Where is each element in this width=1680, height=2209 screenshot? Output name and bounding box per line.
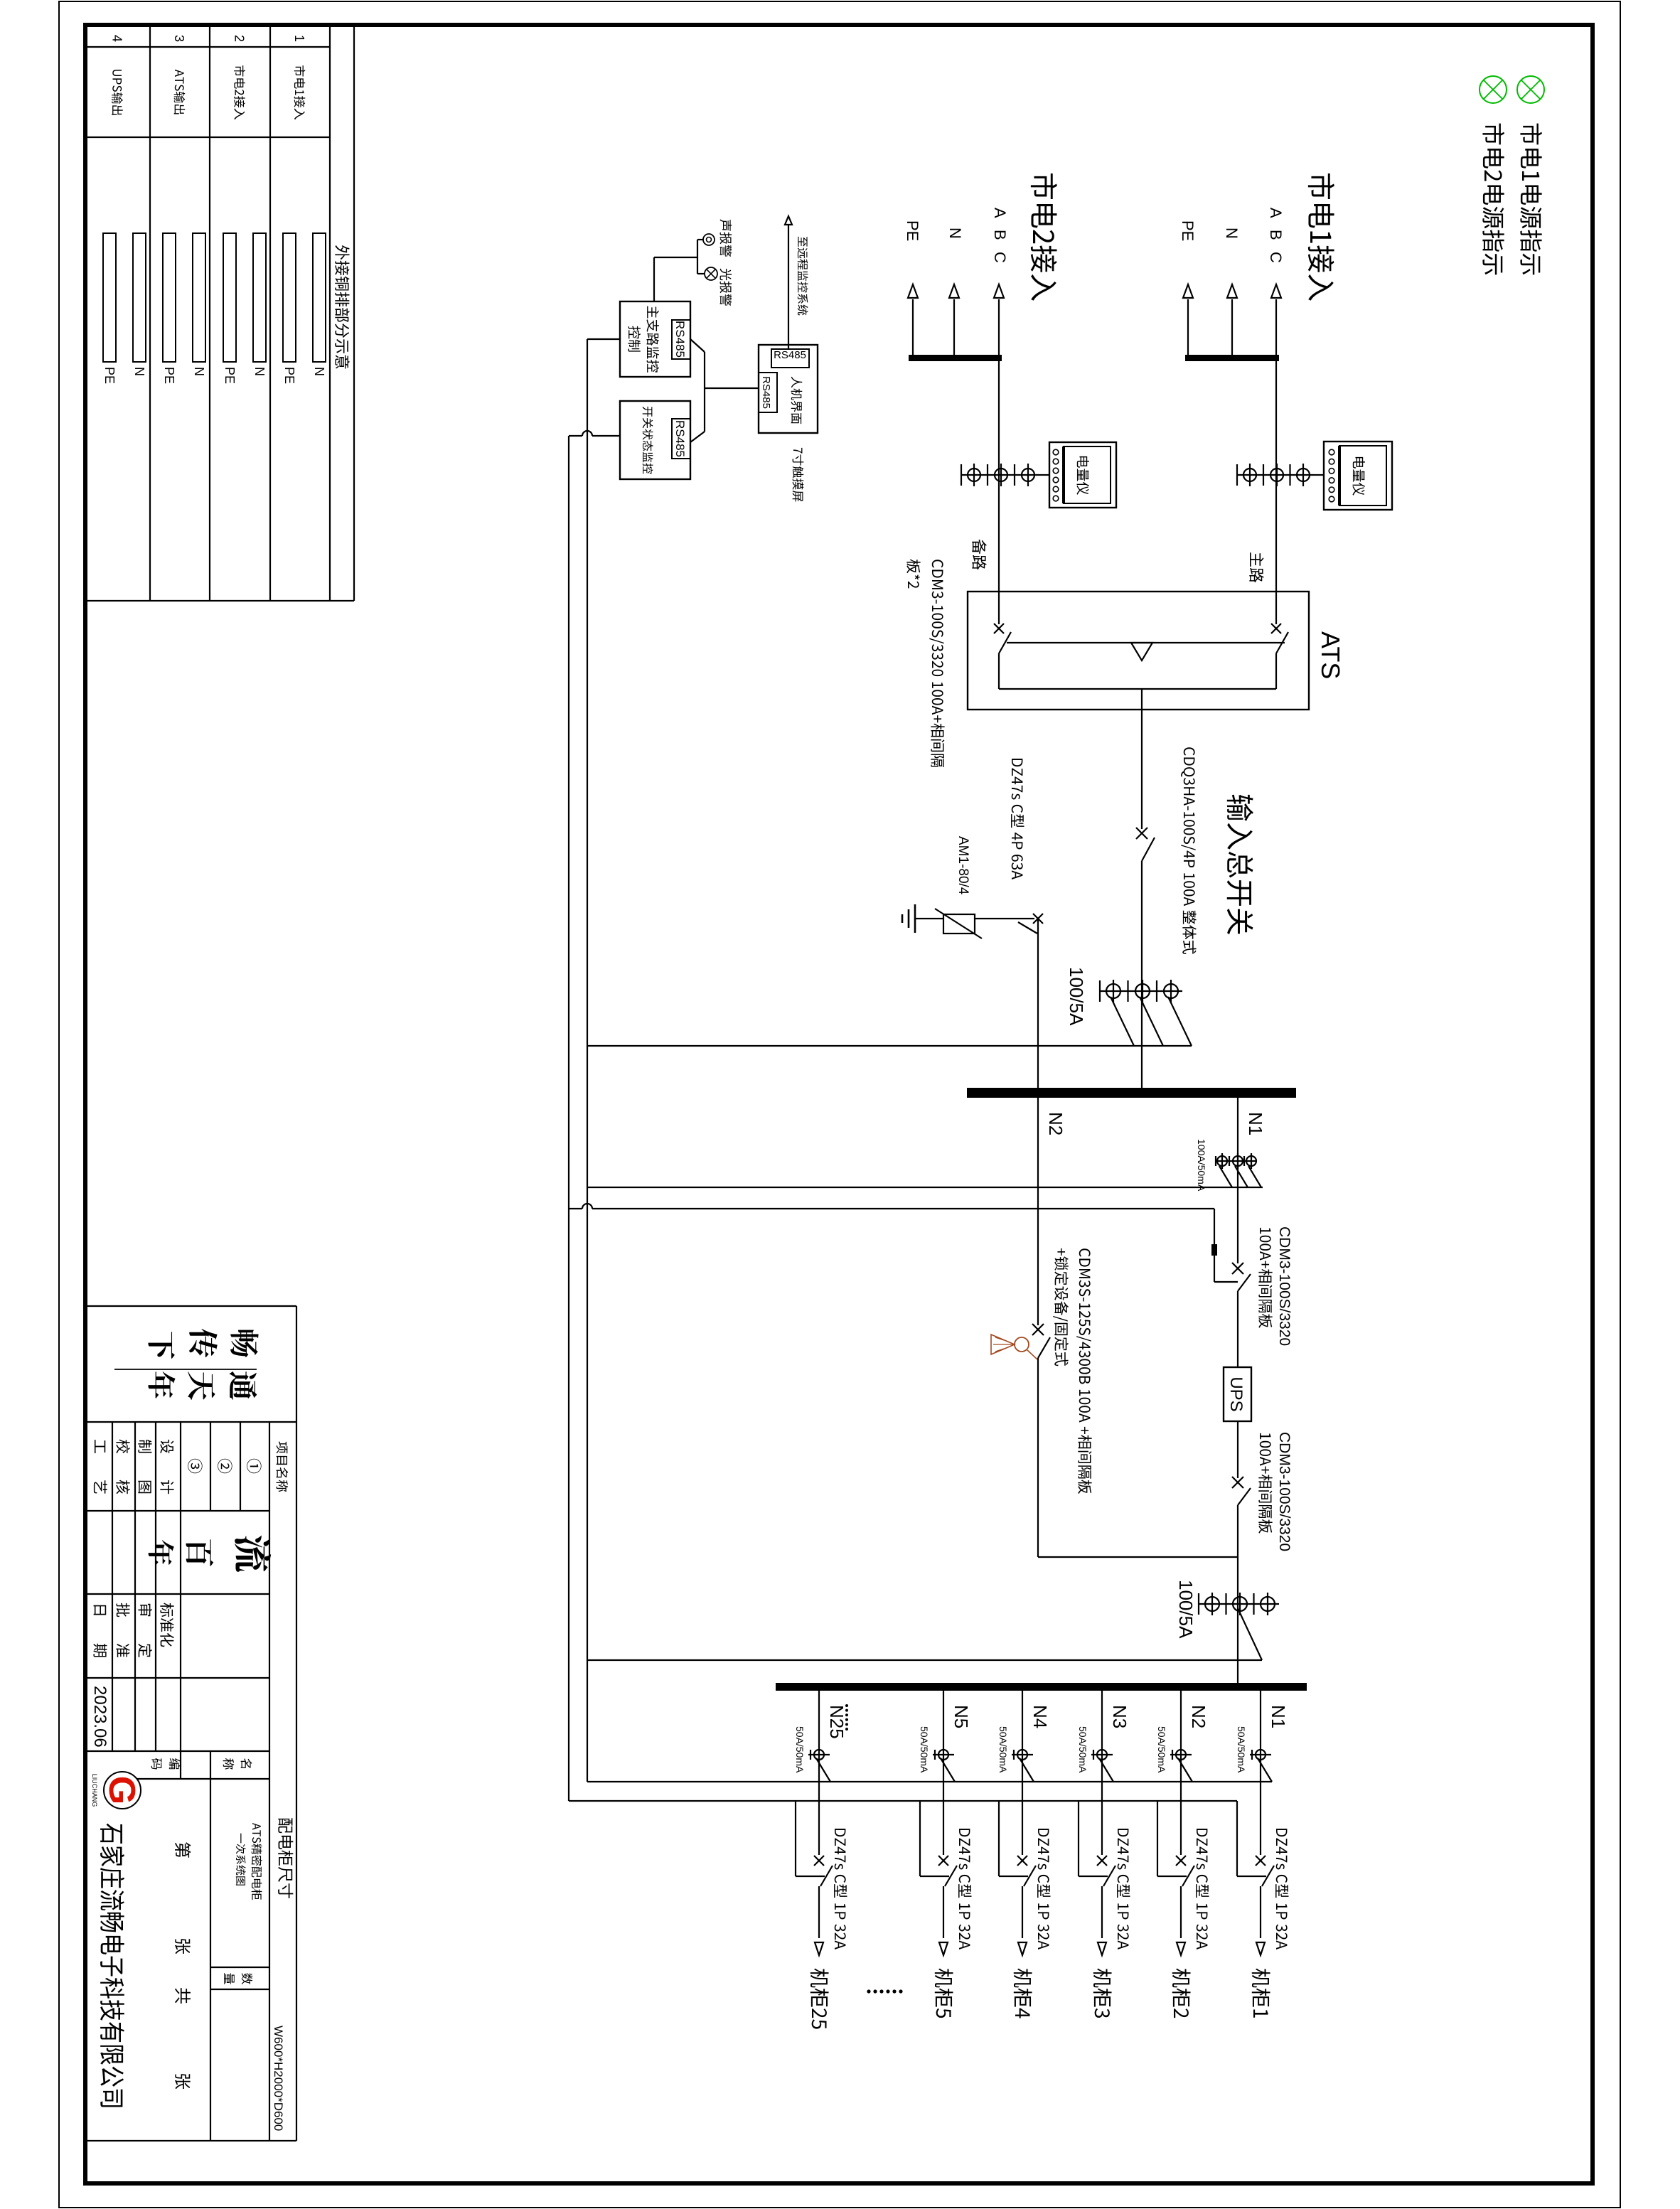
svg-text:AM1-80/4: AM1-80/4	[956, 836, 970, 895]
svg-text:50A/50mA: 50A/50mA	[997, 1726, 1009, 1773]
svg-text:3: 3	[172, 35, 186, 42]
svg-text:C: C	[1267, 252, 1285, 263]
svg-text:N1: N1	[1245, 1112, 1266, 1135]
svg-text:B: B	[1267, 230, 1285, 240]
svg-text:N25: N25	[826, 1705, 847, 1739]
svg-text:A: A	[1267, 208, 1285, 218]
svg-text:N: N	[252, 367, 267, 376]
svg-text:PE: PE	[162, 367, 176, 384]
svg-text:2023.06: 2023.06	[90, 1686, 109, 1748]
svg-text:N: N	[192, 367, 206, 376]
svg-text:50A/50mA: 50A/50mA	[1077, 1726, 1088, 1773]
svg-text:N2: N2	[1188, 1705, 1209, 1728]
svg-text:B: B	[991, 230, 1009, 240]
svg-text:N: N	[946, 228, 964, 239]
svg-text:A: A	[991, 208, 1009, 218]
svg-text:UPS: UPS	[1226, 1376, 1246, 1411]
svg-text:N4: N4	[1029, 1705, 1051, 1728]
svg-text:N2: N2	[1045, 1112, 1066, 1135]
svg-text:N: N	[132, 367, 146, 376]
svg-text:4: 4	[110, 35, 124, 42]
svg-text:RS485: RS485	[760, 376, 772, 409]
svg-text:CDM3-100S/3320: CDM3-100S/3320	[1276, 1432, 1293, 1551]
svg-text:2: 2	[232, 35, 247, 42]
svg-text:C: C	[991, 252, 1009, 263]
svg-text:100/5A: 100/5A	[1175, 1580, 1197, 1639]
svg-text:LIUCHANG: LIUCHANG	[91, 1774, 98, 1807]
svg-text:N3: N3	[1109, 1705, 1130, 1728]
svg-text:PE: PE	[282, 367, 296, 384]
svg-text:W600*H2000*D600: W600*H2000*D600	[272, 2026, 285, 2131]
svg-text:N: N	[312, 367, 326, 376]
svg-text:ATS: ATS	[1316, 631, 1345, 679]
svg-text:PE: PE	[904, 220, 921, 241]
svg-text:50A/50mA: 50A/50mA	[1156, 1726, 1167, 1773]
svg-text:50A/50mA: 50A/50mA	[1236, 1726, 1247, 1773]
svg-text:100A/50mA: 100A/50mA	[1196, 1139, 1207, 1192]
svg-text:N: N	[1223, 228, 1241, 239]
svg-text:G: G	[101, 1776, 142, 1804]
svg-text:N5: N5	[951, 1705, 972, 1728]
svg-text:CDM3-100S/3320: CDM3-100S/3320	[1276, 1226, 1293, 1346]
svg-text:1: 1	[292, 35, 306, 42]
svg-text:PE: PE	[223, 367, 237, 384]
svg-text:100/5A: 100/5A	[1066, 967, 1087, 1026]
svg-text:RS485: RS485	[774, 349, 806, 361]
svg-text:PE: PE	[102, 367, 117, 384]
svg-text:50A/50mA: 50A/50mA	[794, 1726, 806, 1773]
svg-text:50A/50mA: 50A/50mA	[919, 1726, 930, 1773]
svg-text:PE: PE	[1179, 220, 1197, 241]
svg-text:N1: N1	[1268, 1705, 1289, 1728]
svg-text:RS485: RS485	[673, 321, 687, 358]
svg-text:RS485: RS485	[673, 420, 687, 457]
